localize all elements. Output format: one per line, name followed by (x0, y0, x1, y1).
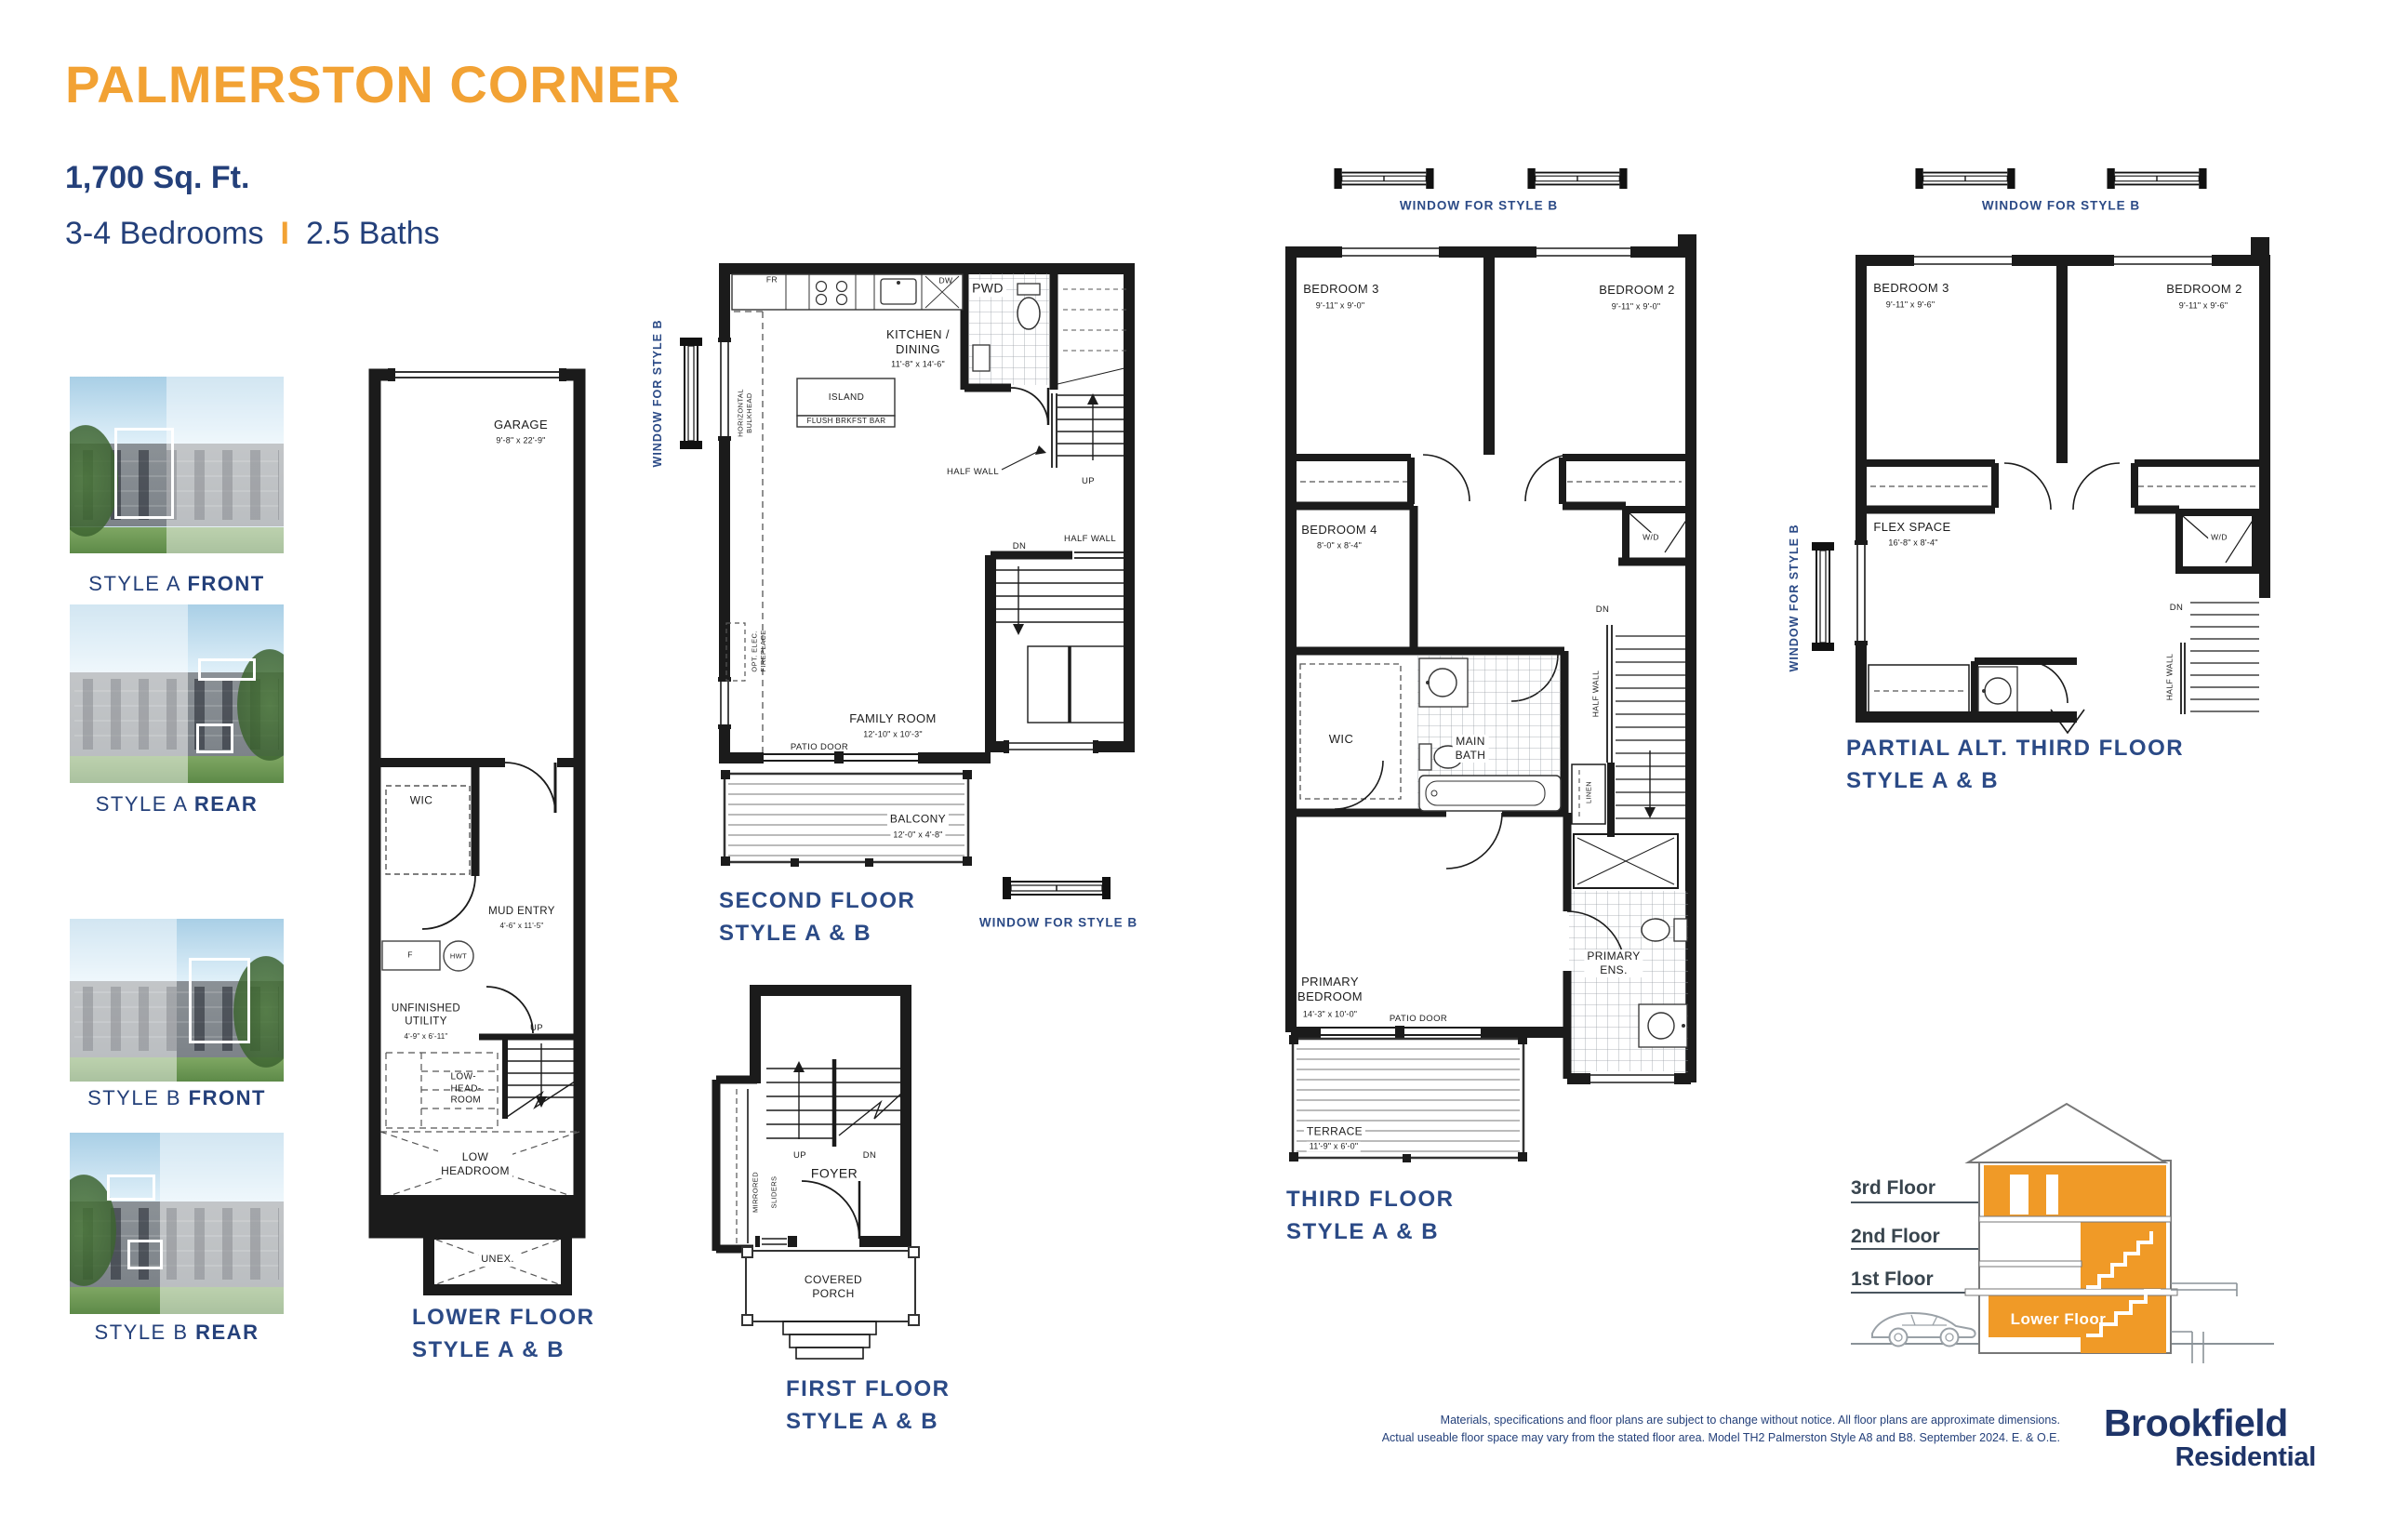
utility-dims: 4'-9" x 6'-11" (405, 1032, 448, 1042)
brookfield-logo: Brookfield Residential (2104, 1404, 2316, 1471)
fridge-label: FR (766, 275, 778, 285)
sliders-label: SLIDERS (769, 1176, 778, 1209)
photo-style-b-rear (70, 1133, 284, 1314)
stairs-up (1052, 289, 1128, 468)
flex-space-dims: 16'-8" x 8'-4" (1888, 538, 1937, 548)
bedroom2-dims: 9'-11" x 9'-0" (1612, 301, 1660, 312)
photo-fade-overlay (160, 1133, 284, 1314)
section-lower-floor-label: Lower Floor (2011, 1310, 2107, 1329)
unit-highlight-outline (189, 958, 250, 1043)
door-arc (2026, 661, 2068, 703)
toilet-icon (1018, 284, 1040, 329)
porch-steps (783, 1321, 876, 1359)
stairs-down (1607, 625, 1685, 837)
door-arc (2004, 463, 2051, 510)
beds-baths-line: 3-4 Bedrooms I 2.5 Baths (65, 216, 440, 252)
terrace-dims: 11'-9" x 6'-0" (1307, 1141, 1361, 1151)
window-icon (1327, 167, 1441, 190)
half-wall-label: HALF WALL (1064, 534, 1116, 545)
third-floor-title: THIRD FLOOR STYLE A & B (1286, 1184, 1454, 1249)
section-2nd-floor-label: 2nd Floor (1851, 1226, 1940, 1248)
disclaimer-line-2: Actual useable floor space may vary from… (1274, 1429, 2060, 1447)
alt-bedroom2-label: BEDROOM 2 (2166, 282, 2242, 297)
dn-label: DN (1596, 604, 1610, 616)
alt-bedroom3-label: BEDROOM 3 (1873, 281, 1949, 296)
patio-door-icon (764, 751, 918, 763)
island-label: ISLAND (829, 392, 865, 405)
low-head-room-label: LOW- HEAD- ROOM (450, 1071, 481, 1107)
window-style-b-note: WINDOW FOR STYLE B (1788, 524, 1801, 672)
half-wall-label: HALF WALL (1591, 670, 1602, 718)
dn-label: DN (1013, 541, 1027, 552)
style-b-front-label: STYLE B FRONT (70, 1086, 284, 1110)
breakfast-bar-label: FLUSH BRKFST BAR (807, 417, 886, 426)
first-floor-plan (709, 979, 927, 1421)
closet (1867, 463, 2259, 508)
kitchen-dims: 11'-8" x 14'-6" (891, 359, 945, 369)
window-icon (760, 1236, 788, 1247)
photo-fade-overlay (70, 604, 188, 783)
window-style-b-note: WINDOW FOR STYLE B (1982, 199, 2140, 213)
photo-style-b-front (70, 919, 284, 1082)
window-icon (680, 338, 702, 449)
mud-entry-dims: 4'-6" x 11'-5" (500, 922, 544, 931)
window-icon (2100, 167, 2214, 190)
dishwasher-label: DW (939, 276, 953, 286)
primary-ens-label: PRIMARY ENS. (1584, 949, 1643, 977)
disclaimer-text: Materials, specifications and floor plan… (1274, 1412, 2060, 1448)
door-arc (505, 763, 555, 813)
kitchen-label: KITCHEN / DINING (886, 327, 950, 358)
second-floor-title: SECOND FLOOR STYLE A & B (719, 885, 915, 950)
window-icon (1521, 167, 1634, 190)
up-label: UP (793, 1150, 806, 1162)
lower-floor-title: LOWER FLOOR STYLE A & B (412, 1302, 594, 1367)
freezer-label: F (407, 950, 413, 961)
unit-highlight-outline (198, 658, 256, 681)
bedroom4-dims: 8'-0" x 8'-4" (1317, 540, 1362, 551)
stairs-down (991, 552, 1129, 752)
photo-fade-overlay (166, 377, 285, 553)
unexcavated-label: UNEX. (478, 1254, 517, 1267)
alt-bedroom2-dims: 9'-11" x 9'-6" (2179, 300, 2228, 311)
photo-fade-overlay (70, 919, 177, 1082)
utility-label: UNFINISHED UTILITY (392, 1002, 460, 1029)
family-room-label: FAMILY ROOM (849, 711, 937, 726)
alt-third-floor-title: PARTIAL ALT. THIRD FLOOR STYLE A & B (1846, 733, 2184, 798)
brochure-page: PALMERSTON CORNER 1,700 Sq. Ft. 3-4 Bedr… (0, 0, 2381, 1540)
style-a-rear-label: STYLE A REAR (70, 792, 284, 816)
window-style-b-note: WINDOW FOR STYLE B (1400, 199, 1558, 213)
photo-style-a-front (70, 377, 284, 553)
bedrooms-text: 3-4 Bedrooms (65, 216, 264, 252)
door-arc (1423, 455, 1470, 501)
terrace-label: TERRACE (1304, 1125, 1365, 1139)
mud-entry-label: MUD ENTRY (488, 905, 555, 918)
bath-sink (1639, 1004, 1687, 1047)
unit-highlight-outline (127, 1240, 163, 1269)
foyer-label: FOYER (811, 1165, 858, 1182)
up-label: UP (530, 1023, 543, 1034)
closet (1297, 458, 1685, 504)
door-arc (2073, 463, 2120, 510)
bathtub-icon (1419, 776, 1561, 811)
window-style-b-note: WINDOW FOR STYLE B (979, 916, 1137, 930)
door-arc (802, 1181, 859, 1239)
half-wall-label: HALF WALL (947, 467, 999, 478)
half-wall-label: HALF WALL (2165, 654, 2175, 701)
window-icon (1812, 542, 1834, 651)
unit-highlight-outline (107, 1175, 155, 1201)
wd-label: W/D (2208, 533, 2230, 543)
up-label: UP (1082, 476, 1095, 487)
bedroom4-label: BEDROOM 4 (1301, 523, 1377, 538)
car-icon (1872, 1313, 1975, 1347)
pwd-sink (973, 345, 990, 371)
bath-sink (1978, 667, 2017, 713)
hwt-label: HWT (450, 951, 467, 960)
window-icon (1853, 540, 1869, 645)
patio-door-label: PATIO DOOR (1390, 1014, 1447, 1025)
dn-label: DN (863, 1150, 877, 1162)
window-icon (1909, 167, 2022, 190)
brand-name-line-2: Residential (2104, 1444, 2316, 1471)
section-3rd-floor-label: 3rd Floor (1851, 1177, 1935, 1200)
low-headroom-label: LOW HEADROOM (438, 1150, 512, 1178)
alt-bedroom3-dims: 9'-11" x 9'-6" (1886, 299, 1935, 310)
bedroom3-dims: 9'-11" x 9'-0" (1316, 300, 1364, 311)
door-arc (1011, 388, 1048, 425)
disclaimer-line-1: Materials, specifications and floor plan… (1274, 1412, 2060, 1429)
bulkhead-dashed-line (734, 312, 763, 758)
partial-alt-third-floor-plan (1844, 235, 2281, 742)
page-title: PALMERSTON CORNER (65, 54, 681, 114)
stairs-down (2181, 603, 2259, 714)
covered-porch-label: COVERED PORCH (805, 1273, 862, 1301)
first-floor-title: FIRST FLOOR STYLE A & B (786, 1374, 950, 1439)
brand-name-line-1: Brookfield (2104, 1404, 2316, 1442)
shower (1574, 834, 1678, 888)
divider-mark: I (281, 216, 289, 252)
primary-bedroom-label: PRIMARY BEDROOM (1297, 975, 1363, 1005)
third-floor-plan (1284, 234, 1716, 1164)
fireplace-label: OPT. ELEC. FIREPLACE (751, 630, 768, 671)
patio-door-icon (1321, 1026, 1481, 1038)
family-room-dims: 12'-10" x 10'-3" (863, 729, 923, 739)
bath-sink (1419, 658, 1468, 707)
bedroom3-label: BEDROOM 3 (1303, 282, 1379, 297)
door-arc (422, 876, 475, 929)
window-icon (1004, 739, 1098, 754)
wic-label: WIC (1329, 732, 1353, 747)
balcony-label: BALCONY (887, 813, 949, 827)
unit-highlight-outline (114, 428, 174, 519)
wd-label: W/D (1640, 533, 1662, 543)
flex-space-label: FLEX SPACE (1873, 520, 1950, 535)
style-a-front-label: STYLE A FRONT (70, 572, 284, 596)
door-arc (1335, 761, 1383, 809)
garage-dims: 9'-8" x 22'-9" (496, 435, 545, 445)
section-1st-floor-label: 1st Floor (1851, 1268, 1934, 1291)
main-bath-label: MAIN BATH (1453, 735, 1489, 763)
style-b-rear-label: STYLE B REAR (70, 1321, 284, 1345)
door-arc (1446, 813, 1502, 869)
dn-label: DN (2170, 603, 2184, 614)
patio-door-label: PATIO DOOR (791, 742, 848, 753)
baths-text: 2.5 Baths (306, 216, 440, 252)
linen-label: LINEN (1584, 781, 1592, 803)
window-icon (1003, 876, 1111, 900)
unit-highlight-outline (196, 724, 233, 753)
door-arc (486, 987, 533, 1033)
garage-label: GARAGE (494, 418, 548, 432)
stairs-icon (766, 1059, 902, 1147)
toilet-icon (1642, 919, 1687, 941)
wic-label: WIC (410, 794, 433, 808)
bulkhead-label: HORIZONTAL BULKHEAD (737, 389, 754, 437)
balcony-dims: 12'-0" x 4'-8" (890, 830, 945, 840)
window-icon (1590, 1071, 1674, 1086)
photo-style-a-rear (70, 604, 284, 783)
closet (1869, 665, 1969, 713)
window-style-b-note: WINDOW FOR STYLE B (651, 320, 664, 468)
square-footage: 1,700 Sq. Ft. (65, 160, 249, 196)
stairs-up (505, 1037, 578, 1119)
mirrored-label: MIRRORED (751, 1172, 759, 1213)
primary-bedroom-dims: 14'-3" x 10'-0" (1303, 1009, 1357, 1019)
powder-room-label: PWD (969, 280, 1006, 297)
bedroom2-label: BEDROOM 2 (1599, 283, 1675, 298)
